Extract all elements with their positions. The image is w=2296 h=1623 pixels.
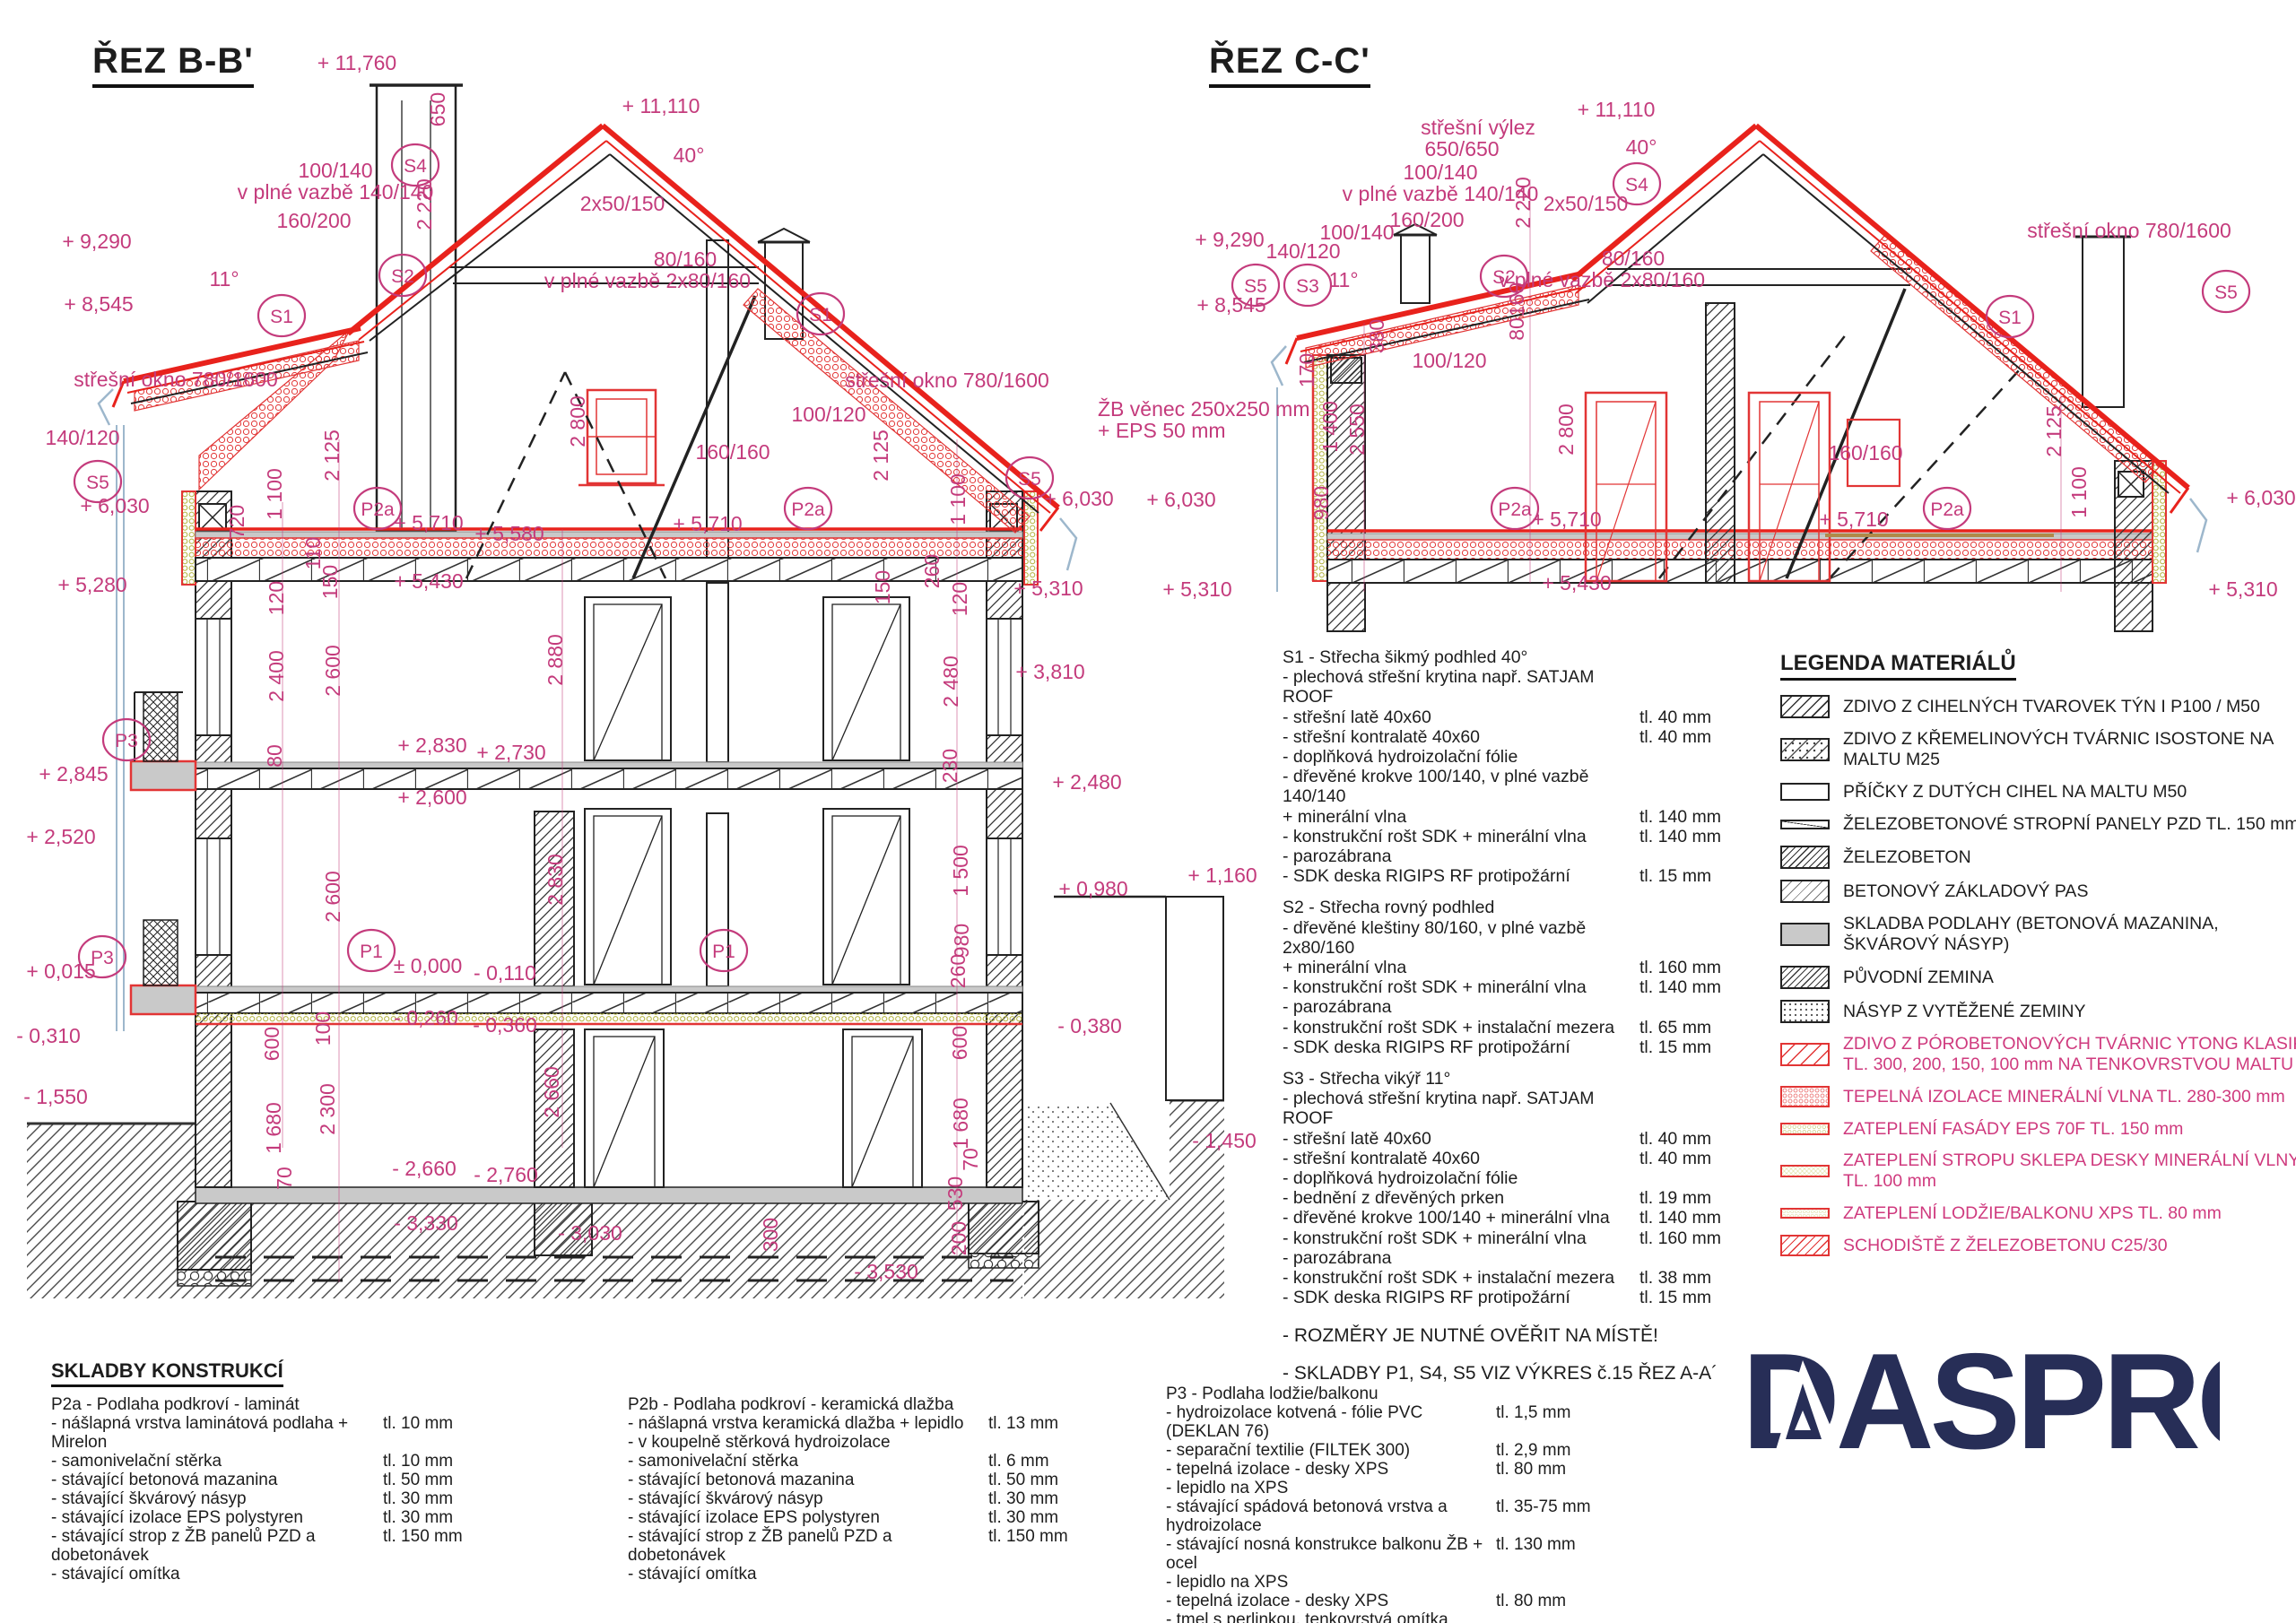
legend-label: TEPELNÁ IZOLACE MINERÁLNÍ VLNA TL. 280-3… — [1843, 1087, 2285, 1107]
layer-thickness — [1639, 667, 1785, 707]
dimension-label: + 5,710 — [673, 512, 742, 535]
dimension-label: 1 680 — [262, 1102, 285, 1154]
material-swatch — [1780, 1043, 1830, 1066]
layer-thickness — [1496, 1479, 1686, 1497]
drawing-rez-bb — [27, 85, 1224, 1298]
dimension-label: + 1,160 — [1187, 864, 1257, 887]
composition-row: - stávající izolace EPS polystyren tl. 3… — [51, 1508, 540, 1527]
dimension-label: v plné vazbě 140/140 — [1343, 182, 1539, 205]
reference-marker: S1 — [1987, 296, 2033, 337]
legend-item: ZATEPLENÍ FASÁDY EPS 70F TL. 150 mm — [1780, 1118, 2296, 1140]
layer-name: - tmel s perlinkou, tenkovrstvá omítka — [1166, 1610, 1496, 1623]
marker-label: S4 — [1625, 175, 1648, 195]
dimension-label: + 8,545 — [64, 292, 133, 316]
layer-thickness — [988, 1433, 1144, 1452]
material-swatch — [1780, 695, 1830, 718]
attic-floor — [1327, 531, 2152, 583]
marker-label: S4 — [404, 156, 427, 177]
zb-venec — [1331, 358, 1361, 383]
composition-row: - stávající omítka — [51, 1565, 540, 1584]
composition-row: - stávající omítka — [628, 1565, 1144, 1584]
material-swatch — [1780, 1000, 1830, 1023]
legend-item: ŽELEZOBETONOVÉ STROPNÍ PANELY PZD TL. 15… — [1780, 813, 2296, 835]
interior-doors — [585, 597, 922, 1187]
terrain-under — [196, 1203, 1022, 1298]
dimension-label: + 11,760 — [317, 51, 396, 74]
layer-thickness: tl. 50 mm — [383, 1471, 540, 1489]
composition-row: - konstrukční rošt SDK + instalační meze… — [1283, 1268, 1785, 1288]
dimension-label: + 9,290 — [1195, 228, 1264, 251]
legend-label: ZATEPLENÍ STROPU SKLEPA DESKY MINERÁLNÍ … — [1843, 1150, 2296, 1192]
legend-label: NÁSYP Z VYTĚŽENÉ ZEMINY — [1843, 1002, 2086, 1022]
composition-row: - stávající spádová betonová vrstva a hy… — [1166, 1497, 1686, 1535]
layer-name: - plechová střešní krytina např. SATJAM … — [1283, 667, 1639, 707]
dimension-label: + 5,430 — [1542, 571, 1611, 595]
composition-row: - parozábrana — [1283, 1248, 1785, 1268]
composition-row: - stávající škvárový násyp tl. 30 mm — [51, 1489, 540, 1508]
layer-thickness: tl. 150 mm — [988, 1527, 1144, 1565]
layer-thickness — [1639, 918, 1785, 958]
material-swatch — [1780, 1208, 1830, 1219]
dimension-label: - 2,660 — [392, 1157, 457, 1180]
dimension-label: 300 — [759, 1218, 782, 1252]
layer-thickness: tl. 2,9 mm — [1496, 1441, 1686, 1460]
composition-row: - střešní kontralatě 40x60 tl. 40 mm — [1283, 727, 1785, 747]
dimension-label: - 0,260 — [394, 1006, 458, 1029]
dimension-label: 110 — [301, 537, 325, 570]
dimension-label: 260 — [920, 554, 944, 588]
layer-name: - samonivelační stěrka — [628, 1452, 988, 1471]
dimension-label: střešní okno 780/1600 — [2027, 219, 2231, 242]
layer-thickness — [1639, 1089, 1785, 1128]
dimension-label: 650/650 — [1424, 137, 1499, 161]
legend-label: ZDIVO Z KŘEMELINOVÝCH TVÁRNIC ISOSTONE N… — [1843, 729, 2296, 770]
dimension-label: + 2,520 — [26, 825, 95, 848]
composition-row: + minerální vlna tl. 160 mm — [1283, 958, 1785, 977]
reference-marker: S4 — [1613, 163, 1660, 204]
material-swatch — [1780, 880, 1830, 903]
composition-row: - doplňková hydroizolační fólie — [1283, 1168, 1785, 1188]
composition-row: - střešní latě 40x60 tl. 40 mm — [1283, 707, 1785, 727]
dimension-label: 100/120 — [1412, 349, 1486, 372]
composition-row: - stávající strop z ŽB panelů PZD a dobe… — [51, 1527, 540, 1565]
layer-thickness: tl. 15 mm — [1639, 1037, 1785, 1057]
layer-name: - střešní kontralatě 40x60 — [1283, 1149, 1639, 1168]
marker-label: S2 — [1492, 267, 1516, 288]
layer-name: - stávající nosná konstrukce balkonu ŽB … — [1166, 1535, 1496, 1573]
layer-thickness: tl. 13 mm — [988, 1414, 1144, 1433]
composition-row: - střešní latě 40x60 tl. 40 mm — [1283, 1129, 1785, 1149]
dimension-label: 600 — [260, 1027, 283, 1061]
layer-thickness: tl. 140 mm — [1639, 977, 1785, 997]
layer-name: - plechová střešní krytina např. SATJAM … — [1283, 1089, 1639, 1128]
composition-row: - střešní kontralatě 40x60 tl. 40 mm — [1283, 1149, 1785, 1168]
layer-name: - bednění z dřevěných prken — [1283, 1188, 1639, 1208]
skladba-column-title: P3 - Podlaha lodžie/balkonu — [1166, 1384, 1686, 1403]
layer-thickness: tl. 15 mm — [1639, 1288, 1785, 1307]
composition-row: - konstrukční rošt SDK + minerální vlna … — [1283, 1228, 1785, 1248]
dimension-label: 530 — [944, 1176, 967, 1211]
wall-plates — [199, 504, 1017, 531]
material-swatch — [1780, 820, 1830, 829]
dimension-label: + 6,030 — [80, 494, 149, 517]
material-swatch — [1780, 738, 1830, 761]
composition-row: - stávající izolace EPS polystyren tl. 3… — [628, 1508, 1144, 1527]
roof-composition-lists: S1 - Střecha šikmý podhled 40° - plechov… — [1283, 647, 1785, 1384]
dimension-label: 2x50/150 — [580, 192, 665, 215]
legend-item: BETONOVÝ ZÁKLADOVÝ PAS — [1780, 880, 2296, 903]
dimension-label: 100/140 — [298, 159, 372, 182]
legend-label: SKLADBA PODLAHY (BETONOVÁ MAZANINA, ŠKVÁ… — [1843, 914, 2296, 955]
reference-marker: P1 — [348, 930, 395, 971]
skladba-column-title: P2b - Podlaha podkroví - keramická dlažb… — [628, 1395, 1144, 1414]
layer-thickness — [988, 1565, 1144, 1584]
layer-name: - střešní latě 40x60 — [1283, 707, 1639, 727]
dimension-label: 120 — [948, 582, 971, 616]
layer-thickness: tl. 10 mm — [383, 1452, 540, 1471]
dimension-label: 170 — [1295, 353, 1318, 387]
dimension-label: 80/160 — [654, 247, 717, 271]
dimension-label: 2 880 — [544, 634, 567, 686]
wall-stub — [1327, 583, 1365, 631]
layer-thickness: tl. 30 mm — [383, 1489, 540, 1508]
dimension-label: 80 — [1505, 317, 1528, 341]
legend-item: NÁSYP Z VYTĚŽENÉ ZEMINY — [1780, 1000, 2296, 1023]
dimension-label: 2 125 — [869, 430, 892, 482]
layer-name: - stávající strop z ŽB panelů PZD a dobe… — [51, 1527, 383, 1565]
dimension-label: 80/160 — [1602, 247, 1665, 270]
legend-item: TEPELNÁ IZOLACE MINERÁLNÍ VLNA TL. 280-3… — [1780, 1086, 2296, 1107]
composition-row: - parozábrana — [1283, 846, 1785, 866]
skladba-p2b: P2b - Podlaha podkroví - keramická dlažb… — [628, 1395, 1144, 1584]
composition-row: - samonivelační stěrka tl. 6 mm — [628, 1452, 1144, 1471]
composition-row: - samonivelační stěrka tl. 10 mm — [51, 1452, 540, 1471]
gravel-bed — [178, 1270, 251, 1286]
composition-row: - konstrukční rošt SDK + minerální vlna … — [1283, 827, 1785, 846]
reference-marker: P2a — [1924, 488, 1970, 529]
composition-row: - SDK deska RIGIPS RF protipožární tl. 1… — [1283, 1288, 1785, 1307]
layer-thickness: tl. 50 mm — [988, 1471, 1144, 1489]
layer-thickness: tl. 30 mm — [988, 1489, 1144, 1508]
layer-thickness — [1639, 767, 1785, 806]
dimension-label: 100/140 — [1403, 161, 1477, 184]
composition-row: - stávající škvárový násyp tl. 30 mm — [628, 1489, 1144, 1508]
dimension-label: - 1,450 — [1192, 1129, 1257, 1152]
dimension-label: 120 — [265, 581, 288, 615]
layer-thickness: tl. 15 mm — [1639, 866, 1785, 886]
dimension-label: + 5,310 — [1013, 577, 1083, 600]
composition-row: - lepidlo na XPS — [1166, 1479, 1686, 1497]
dimension-label: - 3,330 — [394, 1211, 458, 1235]
legend-item: SCHODIŠTĚ Z ŽELEZOBETONU C25/30 — [1780, 1235, 2296, 1256]
legend-item: PŘÍČKY Z DUTÝCH CIHEL NA MALTU M50 — [1780, 781, 2296, 803]
legend-item: ZDIVO Z KŘEMELINOVÝCH TVÁRNIC ISOSTONE N… — [1780, 729, 2296, 770]
sblock-s1: S1 - Střecha šikmý podhled 40° - plechov… — [1283, 647, 1785, 886]
layer-thickness: tl. 140 mm — [1639, 807, 1785, 827]
marker-label: S1 — [1998, 308, 2022, 328]
layer-name: - hydroizolace kotvená - fólie PVC (DEKL… — [1166, 1403, 1496, 1441]
dimension-label: 2 125 — [320, 430, 344, 482]
dimension-label: 200 — [947, 1221, 970, 1255]
layer-name: - stávající škvárový násyp — [51, 1489, 383, 1508]
dimension-label: 150 — [871, 570, 894, 604]
legend-label: SCHODIŠTĚ Z ŽELEZOBETONU C25/30 — [1843, 1236, 2168, 1256]
dimension-label: 260 — [946, 954, 970, 988]
dimension-label: 11° — [209, 267, 239, 291]
skladba-p3: P3 - Podlaha lodžie/balkonu - hydroizola… — [1166, 1384, 1686, 1623]
composition-row: - plechová střešní krytina např. SATJAM … — [1283, 1089, 1785, 1128]
marker-label: S5 — [2214, 282, 2238, 303]
composition-row: - v koupelně stěrková hydroizolace — [628, 1433, 1144, 1452]
layer-name: - parozábrana — [1283, 1248, 1639, 1268]
composition-row: - stávající betonová mazanina tl. 50 mm — [628, 1471, 1144, 1489]
dimension-label: 2 125 — [2042, 405, 2066, 457]
foundation-pad — [178, 1202, 251, 1270]
dimension-label: + 5,280 — [57, 573, 126, 596]
dimension-label: 70 — [273, 1167, 296, 1190]
material-swatch — [1780, 1123, 1830, 1135]
layer-name: - nášlapná vrstva keramická dlažba + lep… — [628, 1414, 988, 1433]
layer-name: - konstrukční rošt SDK + minerální vlna — [1283, 1228, 1639, 1248]
dimension-label: + 6,030 — [2226, 486, 2295, 509]
dimension-label: 1 680 — [949, 1098, 972, 1150]
dimension-label: + 5,310 — [1162, 577, 1231, 601]
dimension-label: + 5,580 — [474, 522, 544, 545]
dimension-label: 230 — [938, 749, 961, 783]
layer-name: - stávající strop z ŽB panelů PZD a dobe… — [628, 1527, 988, 1565]
dimension-label: střešní okno 780/1600 — [845, 369, 1049, 392]
dormer-window — [578, 390, 665, 485]
dimension-label: - 0,380 — [1057, 1014, 1122, 1037]
material-legend: LEGENDA MATERIÁLŮ ZDIVO Z CIHELNÝCH TVAR… — [1780, 651, 2296, 1267]
dimension-label: 380 — [1365, 319, 1388, 353]
reference-marker: S1 — [258, 295, 305, 336]
legend-title: LEGENDA MATERIÁLŮ — [1780, 651, 2016, 681]
layer-thickness: tl. 40 mm — [1639, 1129, 1785, 1149]
marker-label: P1 — [712, 942, 735, 962]
reference-marker: S3 — [1284, 265, 1331, 306]
layer-thickness: tl. 80 mm — [1496, 1592, 1686, 1610]
eps-strip — [1313, 355, 1327, 581]
legend-item: ŽELEZOBETON — [1780, 846, 2296, 869]
center-wall — [1706, 303, 1735, 583]
material-swatch — [1780, 923, 1830, 946]
eps-strip — [182, 491, 196, 585]
layer-thickness — [1639, 846, 1785, 866]
drawing-sheet: + 11,760650+ 11,11040°2x50/150100/140v p… — [0, 0, 2296, 1623]
layer-name: - stávající izolace EPS polystyren — [51, 1508, 383, 1527]
skladba-column-title: P2a - Podlaha podkroví - laminát — [51, 1395, 540, 1414]
gravel-bed — [969, 1254, 1039, 1268]
material-swatch — [1780, 1086, 1830, 1107]
foundation-pad — [969, 1202, 1039, 1254]
dimension-label: + 5,710 — [1532, 508, 1601, 531]
partition-walls — [707, 240, 728, 986]
dimension-label: 600 — [948, 1026, 971, 1060]
marker-label: S1 — [270, 307, 293, 327]
dimension-label: + 2,730 — [476, 741, 545, 764]
composition-row: - separační textilie (FILTEK 300) tl. 2,… — [1166, 1441, 1686, 1460]
layer-name: - střešní latě 40x60 — [1283, 1129, 1639, 1149]
layer-name: - separační textilie (FILTEK 300) — [1166, 1441, 1496, 1460]
legend-label: ZATEPLENÍ LODŽIE/BALKONU XPS TL. 80 mm — [1843, 1203, 2222, 1224]
reference-marker: P3 — [103, 719, 150, 760]
layer-thickness: tl. 160 mm — [1639, 1228, 1785, 1248]
layer-thickness: tl. 1,5 mm — [1496, 1403, 1686, 1441]
composition-row: - dřevěné krokve 100/140, v plné vazbě 1… — [1283, 767, 1785, 806]
dimension-label: 11° — [1328, 268, 1358, 291]
layer-name: - SDK deska RIGIPS RF protipožární — [1283, 1288, 1639, 1307]
layer-thickness: tl. 6 mm — [988, 1452, 1144, 1471]
composition-row: - lepidlo na XPS — [1166, 1573, 1686, 1592]
dimension-label: v plné vazbě 2x80/160 — [1499, 268, 1705, 291]
legend-label: ZATEPLENÍ FASÁDY EPS 70F TL. 150 mm — [1843, 1119, 2183, 1140]
composition-row: - konstrukční rošt SDK + instalační meze… — [1283, 1018, 1785, 1037]
layer-thickness — [1639, 997, 1785, 1017]
daspro-logo: DASPRO — [1749, 1333, 2220, 1474]
marker-label: P3 — [115, 731, 138, 751]
layer-name: - nášlapná vrstva laminátová podlaha + M… — [51, 1414, 383, 1452]
dimension-label: 1 100 — [946, 473, 970, 525]
layer-thickness — [383, 1565, 540, 1584]
skladba-p2a: P2a - Podlaha podkroví - laminát - nášla… — [51, 1395, 540, 1584]
layer-name: - lepidlo na XPS — [1166, 1479, 1496, 1497]
legend-label: ZDIVO Z PÓROBETONOVÝCH TVÁRNIC YTONG KLA… — [1843, 1034, 2296, 1075]
dimension-label: 70 — [959, 1148, 982, 1171]
sblock-s2: S2 - Střecha rovný podhled - dřevěné kle… — [1283, 898, 1785, 1057]
layer-thickness: tl. 40 mm — [1639, 1149, 1785, 1168]
layer-thickness: tl. 140 mm — [1639, 827, 1785, 846]
dimension-label: 1 100 — [2067, 466, 2091, 518]
layer-name: - parozábrana — [1283, 997, 1639, 1017]
composition-row: - SDK deska RIGIPS RF protipožární tl. 1… — [1283, 866, 1785, 886]
layer-thickness: tl. 10 mm — [383, 1414, 540, 1452]
dimension-label: 980 — [1309, 486, 1333, 520]
layer-name: - tepelná izolace - desky XPS — [1166, 1460, 1496, 1479]
legend-item: ZDIVO Z CIHELNÝCH TVAROVEK TÝN I P100 / … — [1780, 695, 2296, 718]
layer-thickness: tl. 30 mm — [383, 1508, 540, 1527]
dimension-label: - 3,530 — [854, 1260, 918, 1283]
section-title-cc: ŘEZ C-C' — [1209, 41, 1370, 88]
dimension-label: 40° — [1626, 135, 1657, 159]
dimension-label: + 6,030 — [1044, 487, 1113, 510]
composition-row: - stávající strop z ŽB panelů PZD a dobe… — [628, 1527, 1144, 1565]
dimension-label: 980 — [950, 924, 973, 958]
dimension-label: 1 400 — [1318, 401, 1342, 453]
marker-label: P2a — [361, 499, 395, 520]
floor-slabs — [196, 529, 1022, 1024]
dimension-label: 100/120 — [791, 403, 865, 426]
reference-marker: P2a — [1492, 488, 1538, 529]
basement-floor-slab — [196, 1187, 1022, 1203]
terrain-left — [27, 1124, 196, 1298]
dimension-label: 160/160 — [695, 440, 770, 464]
material-swatch — [1780, 1165, 1830, 1177]
dimension-label: 1 500 — [949, 845, 972, 897]
sblock-title: S2 - Střecha rovný podhled — [1283, 898, 1785, 917]
layer-thickness — [1496, 1573, 1686, 1592]
marker-label: S5 — [1018, 469, 1041, 490]
marker-label: S5 — [86, 473, 109, 493]
layer-name: - v koupelně stěrková hydroizolace — [628, 1433, 988, 1452]
layer-name: - doplňková hydroizolační fólie — [1283, 747, 1639, 767]
layer-thickness: tl. 160 mm — [1639, 958, 1785, 977]
layer-thickness — [1496, 1610, 1686, 1623]
layer-thickness: tl. 19 mm — [1639, 1188, 1785, 1208]
dimension-label: + 2,600 — [397, 785, 466, 809]
dimension-label: 720 — [225, 505, 248, 539]
dimension-label: - 1,550 — [23, 1085, 88, 1108]
layer-name: - stávající betonová mazanina — [628, 1471, 988, 1489]
layer-name: - doplňková hydroizolační fólie — [1283, 1168, 1639, 1188]
composition-row: - stávající betonová mazanina tl. 50 mm — [51, 1471, 540, 1489]
composition-row: - plechová střešní krytina např. SATJAM … — [1283, 667, 1785, 707]
balcony — [131, 692, 196, 1014]
layer-name: - dřevěné krokve 100/140, v plné vazbě 1… — [1283, 767, 1639, 806]
dimension-label: 2 800 — [566, 395, 589, 447]
layer-thickness: tl. 65 mm — [1639, 1018, 1785, 1037]
material-swatch — [1780, 966, 1830, 989]
dimension-label: 2 600 — [321, 645, 344, 697]
composition-row: - nášlapná vrstva keramická dlažba + lep… — [628, 1414, 1144, 1433]
layer-thickness: tl. 130 mm — [1496, 1535, 1686, 1573]
layer-name: + minerální vlna — [1283, 807, 1639, 827]
layer-thickness: tl. 30 mm — [988, 1508, 1144, 1527]
dimension-label: 160/160 — [1828, 441, 1902, 464]
dimension-label: 2 400 — [265, 650, 288, 702]
legend-item: ZATEPLENÍ STROPU SKLEPA DESKY MINERÁLNÍ … — [1780, 1150, 2296, 1192]
dimension-label: + 0,980 — [1058, 877, 1127, 900]
retaining-wall — [1166, 897, 1223, 1100]
dimension-label: 2 550 — [1345, 404, 1369, 456]
layer-thickness: tl. 80 mm — [1496, 1460, 1686, 1479]
section-title-bb: ŘEZ B-B' — [92, 41, 254, 88]
composition-row: - bednění z dřevěných prken tl. 19 mm — [1283, 1188, 1785, 1208]
legend-item: ZDIVO Z PÓROBETONOVÝCH TVÁRNIC YTONG KLA… — [1780, 1034, 2296, 1075]
dimension-label: - 3,030 — [558, 1221, 622, 1245]
dimension-label: 100 — [311, 1011, 335, 1046]
layer-thickness: tl. 35-75 mm — [1496, 1497, 1686, 1535]
dimension-label: 2 220 — [1511, 177, 1535, 229]
layer-name: - stávající škvárový násyp — [628, 1489, 988, 1508]
layer-name: - parozábrana — [1283, 846, 1639, 866]
dimension-label: 160/200 — [276, 209, 351, 232]
marker-label: S2 — [391, 266, 414, 287]
skladby-title: SKLADBY KONSTRUKCÍ — [51, 1359, 283, 1387]
layer-name: - tepelná izolace - desky XPS — [1166, 1592, 1496, 1610]
backfill-right — [1024, 1103, 1170, 1200]
dimension-label: 2 830 — [544, 854, 567, 906]
dimension-label: 140/120 — [1265, 239, 1340, 263]
legend-label: BETONOVÝ ZÁKLADOVÝ PAS — [1843, 881, 2088, 902]
dimension-label: + 5,310 — [2208, 577, 2277, 601]
note-see-drawing: - SKLADBY P1, S4, S5 VIZ VÝKRES č.15 ŘEZ… — [1283, 1364, 1785, 1384]
marker-label: P2a — [1498, 499, 1532, 520]
layer-name: - stávající omítka — [628, 1565, 988, 1584]
marker-label: P2a — [1930, 499, 1964, 520]
marker-label: P2a — [791, 499, 825, 520]
dimension-label: + 2,480 — [1052, 770, 1121, 794]
layer-name: - konstrukční rošt SDK + minerální vlna — [1283, 977, 1639, 997]
marker-label: P1 — [360, 942, 383, 962]
dimension-label: 2 300 — [316, 1083, 339, 1135]
composition-row: - tepelná izolace - desky XPS tl. 80 mm — [1166, 1460, 1686, 1479]
dimension-label: + 3,810 — [1015, 660, 1084, 683]
dimension-label: 650 — [426, 92, 449, 126]
composition-row: - tmel s perlinkou, tenkovrstvá omítka — [1166, 1610, 1686, 1623]
composition-row: - dřevěné krokve 100/140 + minerální vln… — [1283, 1208, 1785, 1228]
layer-name: - lepidlo na XPS — [1166, 1573, 1496, 1592]
